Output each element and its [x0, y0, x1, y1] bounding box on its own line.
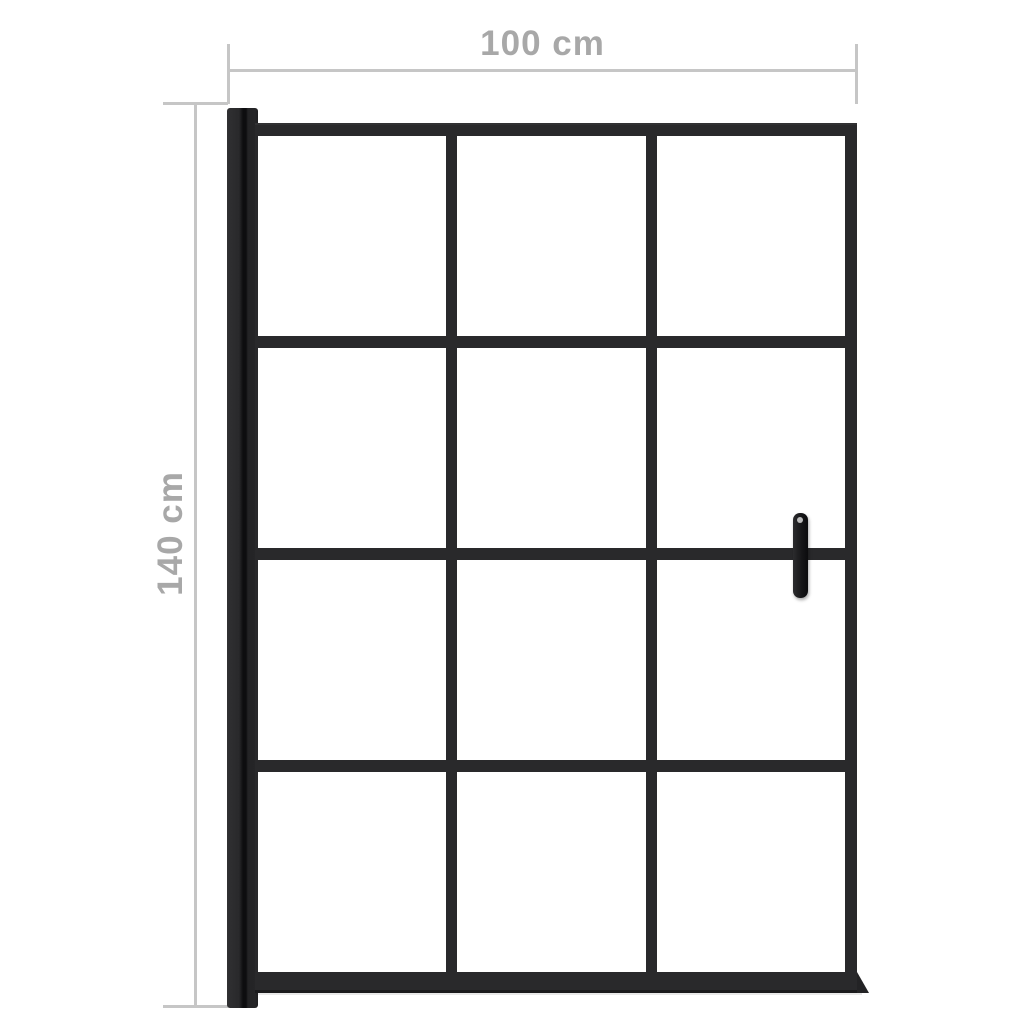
- glass-pane: [258, 772, 446, 972]
- glass-pane: [457, 136, 645, 336]
- wall-profile: [227, 108, 258, 1008]
- glass-pane: [657, 560, 845, 760]
- bottom-rail-corner: [857, 972, 869, 993]
- glass-pane: [657, 136, 845, 336]
- glass-pane: [657, 772, 845, 972]
- height-dimension-line: [194, 103, 197, 1007]
- height-dimension-label: 140 cm: [153, 471, 188, 596]
- glass-pane: [657, 348, 845, 548]
- door-handle-icon: [793, 513, 808, 598]
- door-frame: [255, 123, 857, 993]
- width-dimension-tick-right: [855, 44, 858, 104]
- width-dimension-line: [228, 69, 857, 72]
- glass-grid: [258, 136, 845, 972]
- width-dimension-label: 100 cm: [228, 26, 857, 61]
- height-dimension-tick-top: [163, 102, 228, 105]
- width-dimension-tick-left: [227, 44, 230, 104]
- glass-pane: [258, 348, 446, 548]
- height-dimension-label-box: 140 cm: [130, 103, 210, 963]
- product-diagram-canvas: 100 cm 140 cm: [0, 0, 1024, 1024]
- glass-pane: [457, 772, 645, 972]
- glass-pane: [258, 136, 446, 336]
- floor-shadow: [258, 993, 862, 995]
- glass-pane: [258, 560, 446, 760]
- height-dimension-tick-bottom: [163, 1005, 228, 1008]
- glass-pane: [457, 560, 645, 760]
- glass-pane: [457, 348, 645, 548]
